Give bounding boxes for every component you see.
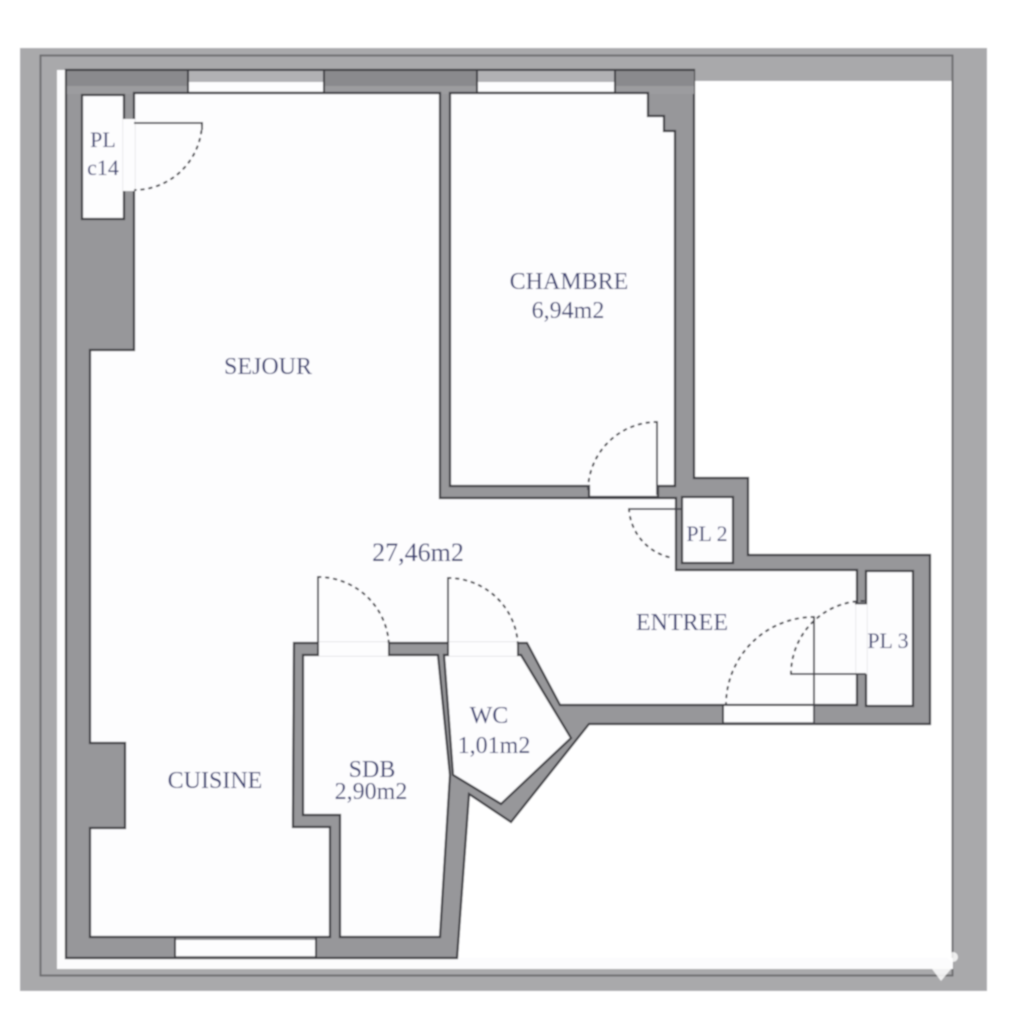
svg-text:27,46m2: 27,46m2	[372, 538, 464, 567]
svg-text:WC: WC	[470, 703, 509, 729]
svg-text:SEJOUR: SEJOUR	[224, 354, 312, 380]
svg-text:2,90m2: 2,90m2	[335, 779, 408, 805]
svg-text:PL: PL	[90, 127, 116, 152]
svg-text:1,01m2: 1,01m2	[458, 733, 531, 759]
svg-text:CHAMBRE: CHAMBRE	[510, 269, 629, 295]
svg-text:c14: c14	[87, 155, 119, 180]
svg-text:ENTREE: ENTREE	[636, 610, 728, 636]
svg-text:PL 2: PL 2	[686, 521, 727, 546]
svg-text:PL 3: PL 3	[867, 628, 908, 653]
svg-text:CUISINE: CUISINE	[168, 768, 263, 794]
svg-text:6,94m2: 6,94m2	[532, 298, 605, 324]
